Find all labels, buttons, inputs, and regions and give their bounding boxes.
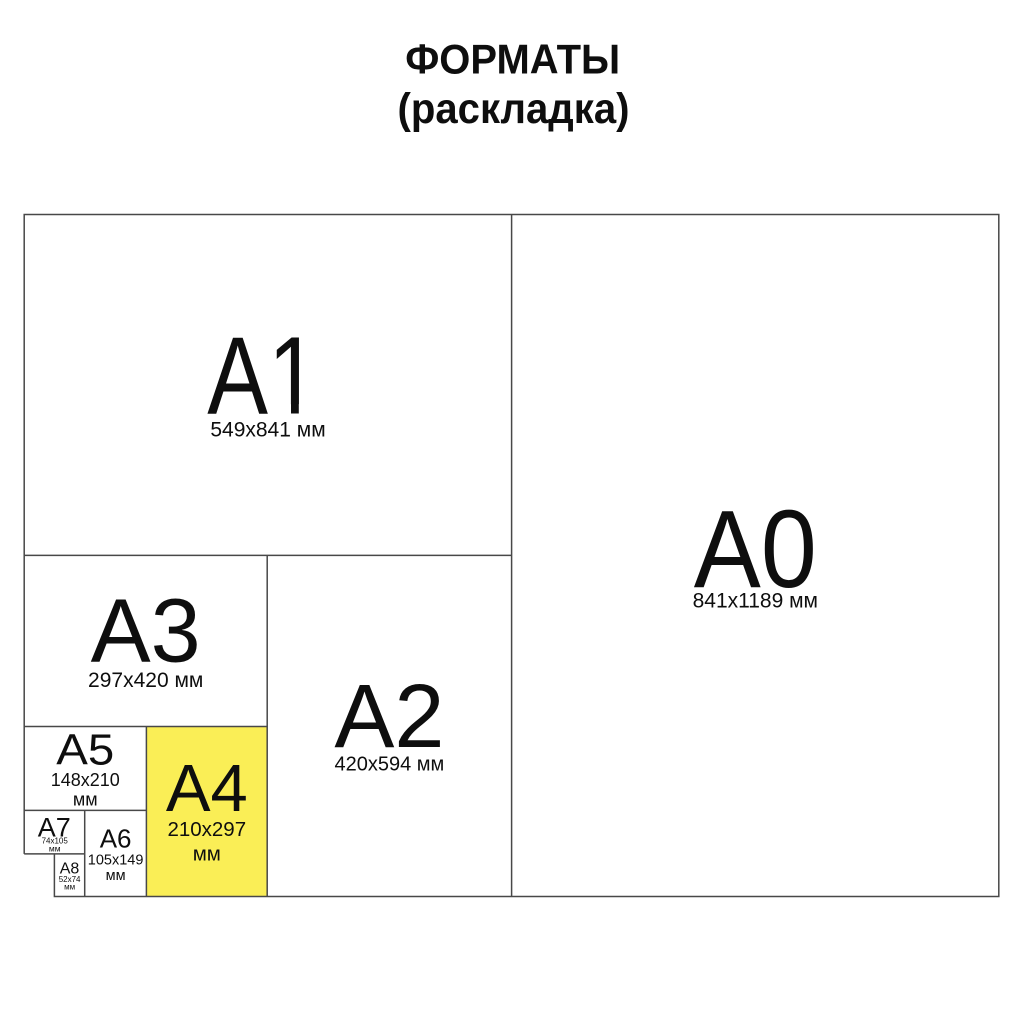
svg-text:148x210: 148x210 (51, 770, 120, 790)
svg-text:549x841 мм: 549x841 мм (210, 419, 325, 442)
svg-text:А4: А4 (166, 751, 248, 826)
svg-text:мм: мм (193, 843, 221, 866)
svg-text:ФОРМАТЫ: ФОРМАТЫ (405, 35, 620, 82)
svg-text:мм: мм (64, 883, 75, 892)
svg-text:297x420 мм: 297x420 мм (88, 669, 203, 692)
svg-text:А2: А2 (334, 667, 444, 767)
svg-text:105x149: 105x149 (88, 853, 144, 869)
svg-text:(раскладка): (раскладка) (398, 85, 630, 133)
svg-text:420x594 мм: 420x594 мм (335, 753, 445, 775)
svg-text:А5: А5 (56, 727, 114, 775)
svg-text:210x297: 210x297 (167, 818, 246, 841)
svg-text:мм: мм (73, 789, 98, 809)
svg-text:А3: А3 (91, 582, 201, 682)
svg-text:мм: мм (49, 843, 61, 853)
svg-text:841x1189 мм: 841x1189 мм (693, 590, 818, 613)
svg-text:А6: А6 (100, 823, 132, 853)
svg-text:мм: мм (106, 868, 126, 884)
